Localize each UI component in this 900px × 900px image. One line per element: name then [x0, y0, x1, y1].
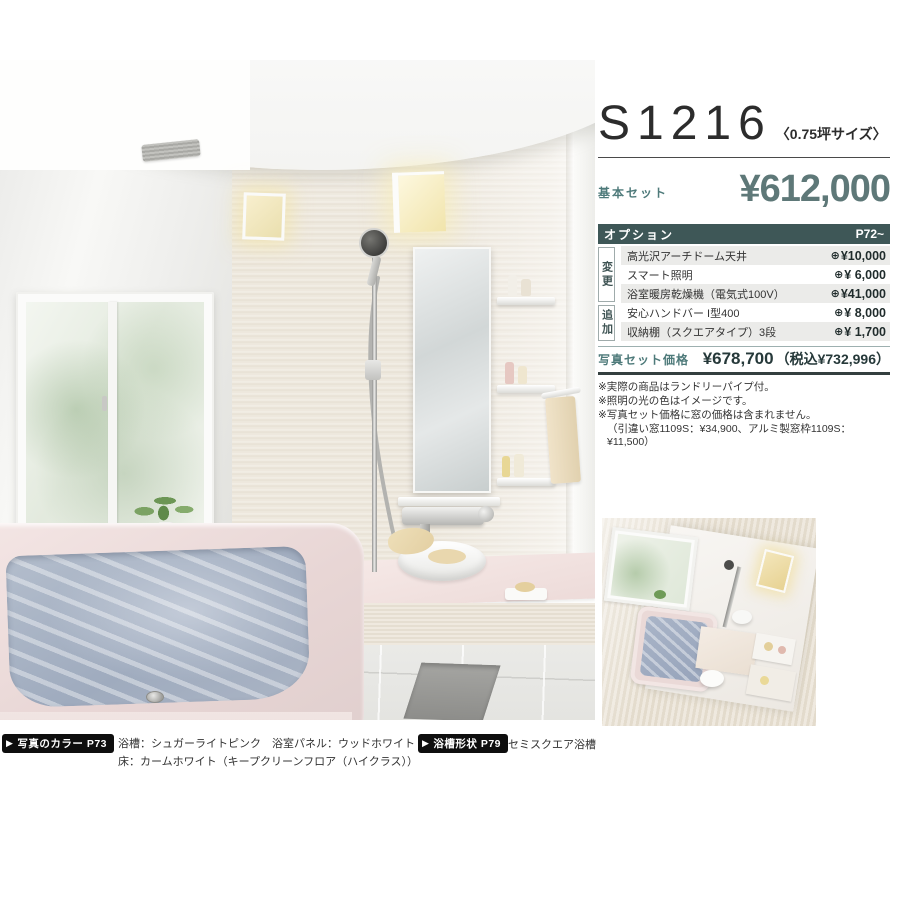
faucet-shelf [398, 497, 500, 506]
bottle [508, 275, 517, 296]
group-label-change: 変更 [598, 247, 615, 302]
color-line-1: 浴槽：シュガーライトピンク 浴室パネル：ウッドホワイト [118, 738, 415, 750]
top-view-photo [602, 518, 816, 726]
faucet-knob [478, 506, 494, 522]
tub-drain-cap [146, 691, 164, 703]
shower-head [359, 228, 389, 258]
wall-corner [566, 60, 574, 565]
arrow-right-icon: ▶ [422, 739, 429, 748]
group-label-add: 追加 [598, 305, 615, 341]
semi-square-bathtub [0, 523, 364, 720]
main-bathroom-photo [0, 60, 595, 720]
plus-circle-icon: ⊕ [834, 268, 843, 281]
option-price-cell: ⊕¥ 8,000 [834, 306, 886, 320]
option-row: スマート照明 ⊕¥ 6,000 [621, 265, 890, 284]
top-view-shower-head [724, 560, 734, 570]
sponge [428, 549, 466, 564]
size-note: 〈0.75坪サイズ〉 [776, 124, 887, 144]
top-view-plant [654, 590, 666, 599]
base-set-label: 基本セット [598, 184, 668, 201]
wall-light-back [392, 171, 446, 233]
plus-circle-icon: ⊕ [834, 325, 843, 338]
title-row: S1216 〈0.75坪サイズ〉 [598, 100, 890, 148]
bathtub-apron [0, 712, 352, 720]
options-table: 変更 追加 高光沢アーチドーム天井 ⊕¥10,000 スマート照明 ⊕¥ 6,0… [598, 246, 890, 342]
options-title: オプション [604, 226, 674, 243]
bottle [514, 454, 524, 477]
top-view-bottle [764, 642, 773, 651]
counter-front-panel [344, 603, 595, 645]
photo-color-badge-label: 写真のカラー P73 [17, 736, 107, 751]
option-row: 高光沢アーチドーム天井 ⊕¥10,000 [621, 246, 890, 265]
option-price-cell: ⊕¥10,000 [831, 249, 886, 263]
option-price-cell: ⊕¥41,000 [831, 287, 886, 301]
wall-light-left [242, 192, 286, 240]
top-view-bottle [778, 646, 786, 654]
bottle [505, 362, 514, 384]
plus-circle-icon: ⊕ [831, 287, 840, 300]
tub-shape-badge: ▶ 浴槽形状 P79 [418, 734, 508, 753]
photo-color-badge: ▶ 写真のカラー P73 [2, 734, 114, 753]
option-price-cell: ⊕¥ 1,700 [834, 325, 886, 339]
option-name: 浴室暖房乾燥機（電気式100V） [627, 286, 785, 302]
window-mullion [108, 302, 117, 540]
note-line: ※写真セット価格に窓の価格は含まれません。 [598, 409, 890, 423]
option-name: 高光沢アーチドーム天井 [627, 248, 747, 264]
model-number: S1216 [598, 100, 772, 148]
top-view-bottle [760, 676, 769, 685]
option-price: ¥ 1,700 [844, 325, 886, 339]
title-divider [598, 157, 890, 158]
option-price-cell: ⊕¥ 6,000 [834, 268, 886, 282]
option-price: ¥10,000 [841, 249, 886, 263]
bottle [502, 456, 510, 477]
options-page-ref: P72~ [856, 227, 884, 241]
wall-trim [574, 60, 595, 565]
tub-shape-description: セミスクエア浴槽 [508, 736, 596, 752]
product-info-panel: S1216 〈0.75坪サイズ〉 基本セット ¥612,000 オプション P7… [598, 100, 890, 450]
photo-set-price-row: 写真セット価格 ¥678,700 （税込¥732,996） [598, 348, 890, 370]
photo-set-tax-note: （税込¥732,996） [776, 349, 890, 369]
option-price: ¥ 6,000 [844, 268, 886, 282]
option-row: 収納棚（スクエアタイプ）3段 ⊕¥ 1,700 [621, 322, 890, 341]
options-rows: 高光沢アーチドーム天井 ⊕¥10,000 スマート照明 ⊕¥ 6,000 浴室暖… [621, 246, 890, 341]
slide-bar-holder [365, 360, 381, 380]
bath-water [5, 546, 310, 708]
catalog-page: S1216 〈0.75坪サイズ〉 基本セット ¥612,000 オプション P7… [0, 0, 900, 900]
arrow-right-icon: ▶ [6, 739, 13, 748]
option-price: ¥41,000 [841, 287, 886, 301]
note-line: （引違い窓1109S：¥34,900、アルミ製窓枠1109S：¥11,500） [598, 423, 890, 451]
option-name: スマート照明 [627, 267, 693, 283]
potted-plant-leaves [128, 484, 202, 528]
window-handle [102, 396, 107, 411]
photo-set-price: ¥678,700 [703, 349, 774, 369]
bottle [521, 279, 531, 296]
color-description: 浴槽：シュガーライトピンク 浴室パネル：ウッドホワイト 床：カームホワイト（キー… [118, 736, 418, 771]
top-view-stool [732, 610, 752, 624]
faucet [402, 507, 484, 525]
top-view-glass [610, 534, 691, 605]
top-view-window [604, 527, 698, 611]
base-set-price: ¥612,000 [740, 170, 891, 208]
options-header-bar: オプション P72~ [598, 224, 890, 244]
option-name: 収納棚（スクエアタイプ）3段 [627, 324, 776, 340]
thick-divider [598, 372, 890, 375]
tub-shape-badge-label: 浴槽形状 P79 [433, 736, 501, 751]
notes-block: ※実際の商品はランドリーパイプ付。 ※照明の光の色はイメージです。 ※写真セット… [598, 381, 890, 450]
color-line-2: 床：カームホワイト（キープクリーンフロア（ハイクラス）） [118, 756, 418, 768]
storage-shelf [497, 297, 555, 305]
shower-slide-bar [372, 242, 377, 572]
option-row: 安心ハンドバー I型400 ⊕¥ 8,000 [621, 303, 890, 322]
option-name: 安心ハンドバー I型400 [627, 305, 739, 321]
storage-shelf [497, 478, 555, 486]
plus-circle-icon: ⊕ [834, 306, 843, 319]
base-set-row: 基本セット ¥612,000 [598, 164, 890, 208]
option-row: 浴室暖房乾燥機（電気式100V） ⊕¥41,000 [621, 284, 890, 303]
top-view-stool [700, 670, 724, 687]
photo-set-value: ¥678,700 （税込¥732,996） [703, 349, 890, 369]
photo-set-label: 写真セット価格 [598, 351, 689, 368]
ceiling-area [0, 60, 250, 170]
bottle [518, 366, 527, 384]
thin-divider [598, 346, 890, 347]
wall-mirror [413, 247, 491, 493]
option-price: ¥ 8,000 [844, 306, 886, 320]
soap [515, 582, 535, 592]
note-line: ※実際の商品はランドリーパイプ付。 [598, 381, 890, 395]
plus-circle-icon: ⊕ [831, 249, 840, 262]
note-line: ※照明の光の色はイメージです。 [598, 395, 890, 409]
hanging-towel [545, 396, 581, 484]
